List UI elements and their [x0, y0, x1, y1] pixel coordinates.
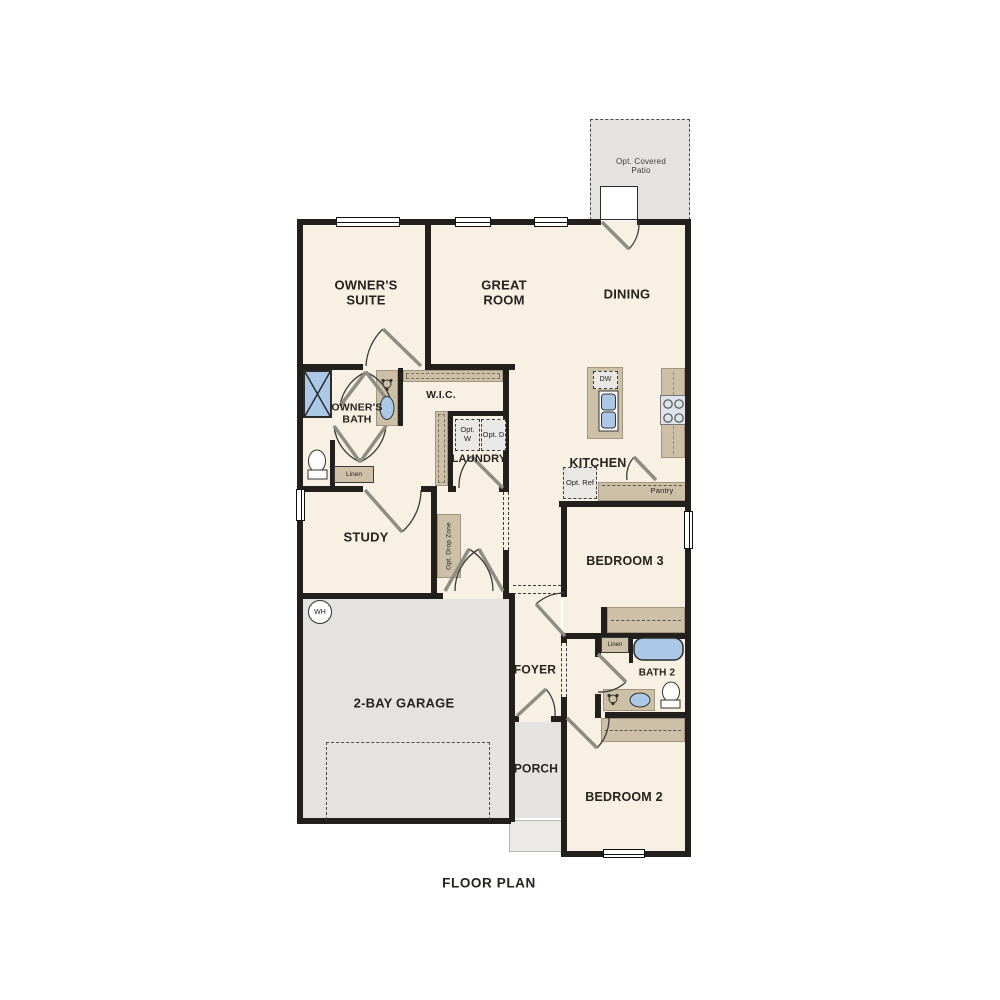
bath2-label: BATH 2: [636, 667, 678, 678]
laundry-label: LAUNDRY: [434, 453, 524, 465]
sheet-title: FLOOR PLAN: [409, 875, 569, 890]
bedroom2-label: BEDROOM 2: [569, 790, 679, 804]
plan-graphics: [0, 0, 1000, 1000]
porch-label: PORCH: [506, 762, 566, 775]
floor-plan-sheet: Opt. W Opt. D Opt. Ref DW Linen Linen WH: [0, 0, 1000, 1000]
drop-zone-label: Opt. Drop Zone: [445, 515, 452, 577]
garage-label: 2-BAY GARAGE: [329, 697, 479, 712]
owners-suite-label: OWNER'S SUITE: [322, 278, 410, 307]
toilet-owners-icon: [308, 450, 327, 479]
toilet-bath2-icon: [661, 682, 680, 708]
range-burners-icon: [664, 400, 683, 422]
study-label: STUDY: [321, 531, 411, 546]
great-room-label: GREAT ROOM: [474, 278, 534, 307]
patio-label: Opt. Covered Patio: [609, 158, 673, 176]
bedroom3-label: BEDROOM 3: [570, 554, 680, 568]
kitchen-sink-icon: [599, 391, 618, 431]
pantry-label: Pantry: [640, 487, 684, 495]
wic-label: W.I.C.: [411, 390, 471, 402]
kitchen-label: KITCHEN: [553, 456, 643, 470]
sink-bath2-icon: [608, 693, 650, 707]
foyer-label: FOYER: [505, 663, 565, 676]
dining-label: DINING: [587, 288, 667, 303]
owners-bath-label: OWNER'S BATH: [319, 402, 395, 426]
bathtub-icon: [634, 638, 683, 660]
